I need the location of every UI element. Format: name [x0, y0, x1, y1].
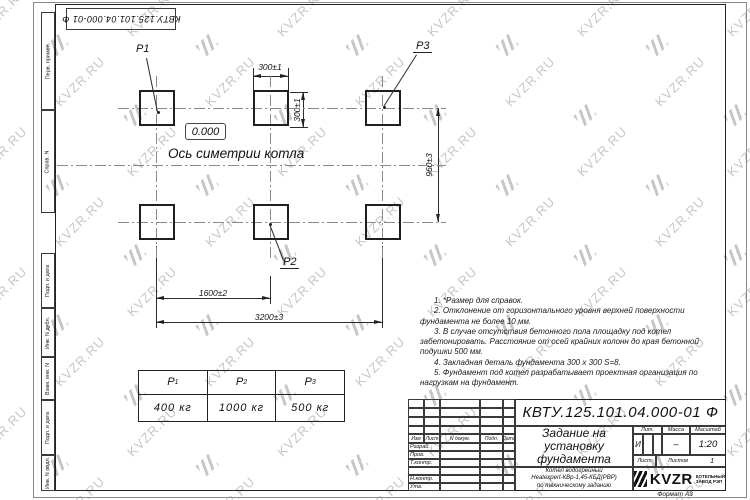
pad-bottom-right — [365, 204, 401, 240]
side-field-label: Справ. N — [45, 150, 51, 173]
leader-dot-p3 — [383, 106, 386, 109]
load-value-p3: 500 кг — [276, 395, 344, 421]
side-field-label: Инв. N подл. — [45, 457, 51, 489]
top-stamp-box: КВТУ.125.101.04.000-01 Ф — [66, 8, 176, 30]
side-field-label: Перв. примен. — [45, 43, 51, 80]
signature-sign-cell — [480, 443, 503, 451]
revision-empty-cell — [480, 408, 503, 417]
signature-sign-cell — [480, 459, 503, 467]
revision-header-cell: Изм — [408, 434, 424, 443]
leader-dot-p2 — [269, 223, 272, 226]
revision-empty-cell — [440, 426, 480, 434]
watermark-text: KVZR.RU — [0, 264, 30, 320]
revision-empty-cell — [503, 408, 515, 417]
watermark-text: KVZR.RU — [0, 0, 30, 39]
pad-p2 — [253, 204, 289, 240]
pad-top-middle — [253, 90, 289, 126]
side-field-label: Подп. и дата — [45, 264, 51, 296]
format-label: Формат А3 — [640, 491, 710, 498]
side-field-cell: Перв. примен. — [41, 12, 55, 110]
signature-doc-cell — [440, 475, 480, 483]
side-field-cell: Подп. и дата — [41, 400, 55, 455]
signature-date-cell — [503, 443, 515, 451]
revision-empty-cell — [424, 426, 440, 434]
side-field-cell: Взам. инв. N — [41, 357, 55, 400]
point-label-p3: P3 — [413, 40, 432, 53]
revision-empty-cell — [503, 426, 515, 434]
signature-role-cell: Утв. — [408, 483, 440, 491]
symmetry-axis-line — [57, 165, 446, 166]
leader-dot-p1 — [157, 111, 160, 114]
load-value-p2: 1000 кг — [208, 395, 277, 421]
load-col-p2: P2 — [208, 371, 277, 394]
watermark-text: KVZR.RU — [0, 124, 30, 180]
revision-empty-cell — [480, 417, 503, 426]
revision-empty-cell — [440, 399, 480, 408]
load-table-value-row: 400 кг 1000 кг 500 кг — [139, 394, 344, 421]
note-item: 4. Закладная деталь фундамента 300 x 300… — [420, 358, 732, 368]
load-table-header-row: P1 P2 P3 — [139, 371, 344, 394]
revision-header-cell: Лист — [424, 434, 440, 443]
signature-sign-cell — [480, 475, 503, 483]
watermark-text: KVZR.RU — [0, 404, 30, 460]
side-field-cell: Инв. N дубл. — [41, 308, 55, 357]
revision-empty-cell — [424, 417, 440, 426]
side-field-label: Подп. и дата — [45, 411, 51, 443]
revision-empty-cell — [440, 417, 480, 426]
revision-empty-cell — [408, 399, 424, 408]
revision-empty-cell — [503, 417, 515, 426]
signature-role-cell: Пров. — [408, 451, 440, 459]
load-table: P1 P2 P3 400 кг 1000 кг 500 кг — [138, 370, 345, 422]
signature-role-cell: Н.контр. — [408, 475, 440, 483]
signature-role-cell: Т.контр. — [408, 459, 440, 467]
drawing-sheet: KVZR.RUKVZR.RUKVZR.RUKVZR.RUKVZR.RUKVZR.… — [0, 0, 750, 500]
top-stamp-text: КВТУ.125.101.04.000-01 Ф — [62, 14, 181, 24]
side-field-cell: Справ. N — [41, 110, 55, 213]
signature-role-cell: Разраб. — [408, 443, 440, 451]
note-item: 3. В случае отсутствия бетонного пола пл… — [420, 327, 732, 358]
revision-empty-cell — [440, 408, 480, 417]
point-label-p1: P1 — [136, 43, 149, 55]
signature-doc-cell — [440, 451, 480, 459]
symmetry-axis-label: Ось симетрии котла — [168, 146, 304, 161]
side-field-cell: Инв. N подл. — [41, 455, 55, 491]
signature-date-cell — [503, 459, 515, 467]
revision-empty-cell — [424, 408, 440, 417]
signature-role-cell — [408, 467, 440, 475]
revision-header-cell: Подп. — [480, 434, 503, 443]
signature-date-cell — [503, 451, 515, 459]
signature-date-cell — [503, 475, 515, 483]
signature-doc-cell — [440, 467, 480, 475]
elevation-value: 0.000 — [192, 126, 220, 138]
signature-doc-cell — [440, 459, 480, 467]
note-item: 2. Отклонение от горизонтального уровня … — [420, 306, 732, 327]
side-field-cell: Подп. и дата — [41, 253, 55, 308]
revision-empty-cell — [480, 399, 503, 408]
revision-empty-cell — [503, 399, 515, 408]
load-value-p1: 400 кг — [139, 395, 208, 421]
signature-sign-cell — [480, 483, 503, 491]
revision-header-cell: Дата — [503, 434, 515, 443]
signature-date-cell — [503, 467, 515, 475]
pad-bottom-left — [139, 204, 175, 240]
revision-empty-cell — [424, 399, 440, 408]
load-col-p3: P3 — [276, 371, 344, 394]
side-field-label: Взам. инв. N — [45, 362, 51, 394]
technical-notes: 1. *Размер для справок.2. Отклонение от … — [420, 296, 732, 389]
load-col-p1: P1 — [139, 371, 208, 394]
note-item: 1. *Размер для справок. — [420, 296, 732, 306]
signature-doc-cell — [440, 483, 480, 491]
elevation-box: 0.000 — [185, 123, 226, 140]
revision-grid: ИзмЛистN докум.Подп.ДатаРазраб.Пров.Т.ко… — [408, 399, 515, 491]
signature-date-cell — [503, 483, 515, 491]
signature-doc-cell — [440, 443, 480, 451]
side-field-label: Инв. N дубл. — [45, 316, 51, 348]
revision-header-cell: N докум. — [440, 434, 480, 443]
note-item: 5. Фундамент под котел разрабатывает про… — [420, 368, 732, 389]
revision-empty-cell — [408, 417, 424, 426]
signature-sign-cell — [480, 467, 503, 475]
revision-empty-cell — [408, 426, 424, 434]
revision-empty-cell — [408, 408, 424, 417]
signature-sign-cell — [480, 451, 503, 459]
revision-empty-cell — [480, 426, 503, 434]
